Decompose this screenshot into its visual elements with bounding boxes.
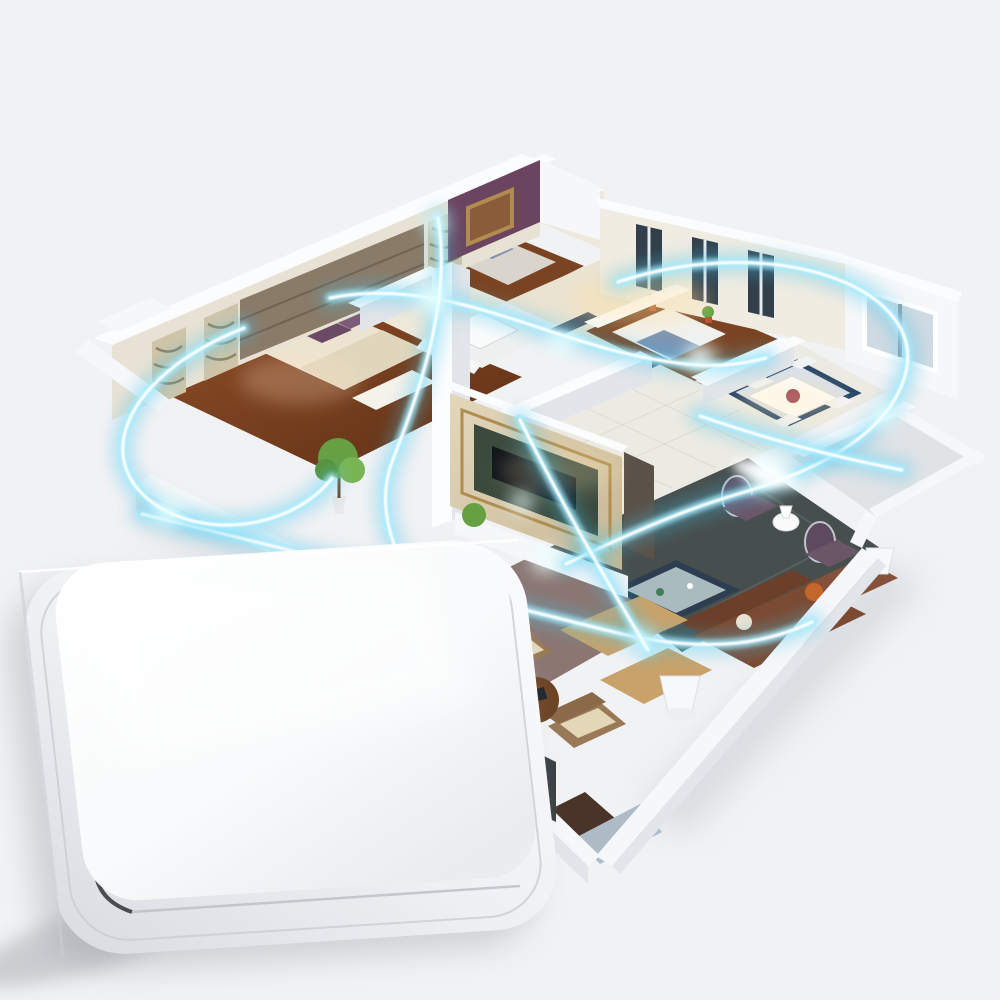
tv-side-plant [462,503,486,527]
plant-pot [705,317,712,323]
sofa-pillow [736,614,752,630]
wall-switch [0,537,564,1000]
floor-lamp-base [664,708,696,720]
table-decor [687,583,693,589]
product-photo [0,0,1000,1000]
scene-canvas [0,0,1000,1000]
table-decor [656,588,664,596]
